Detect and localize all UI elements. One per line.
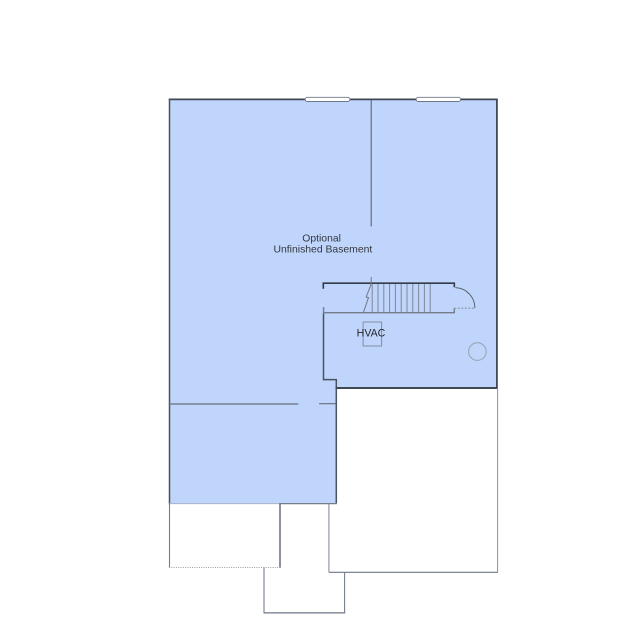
svg-text:Optional: Optional <box>302 233 341 244</box>
svg-text:Unfinished Basement: Unfinished Basement <box>274 244 373 255</box>
svg-text:HVAC: HVAC <box>357 328 386 340</box>
